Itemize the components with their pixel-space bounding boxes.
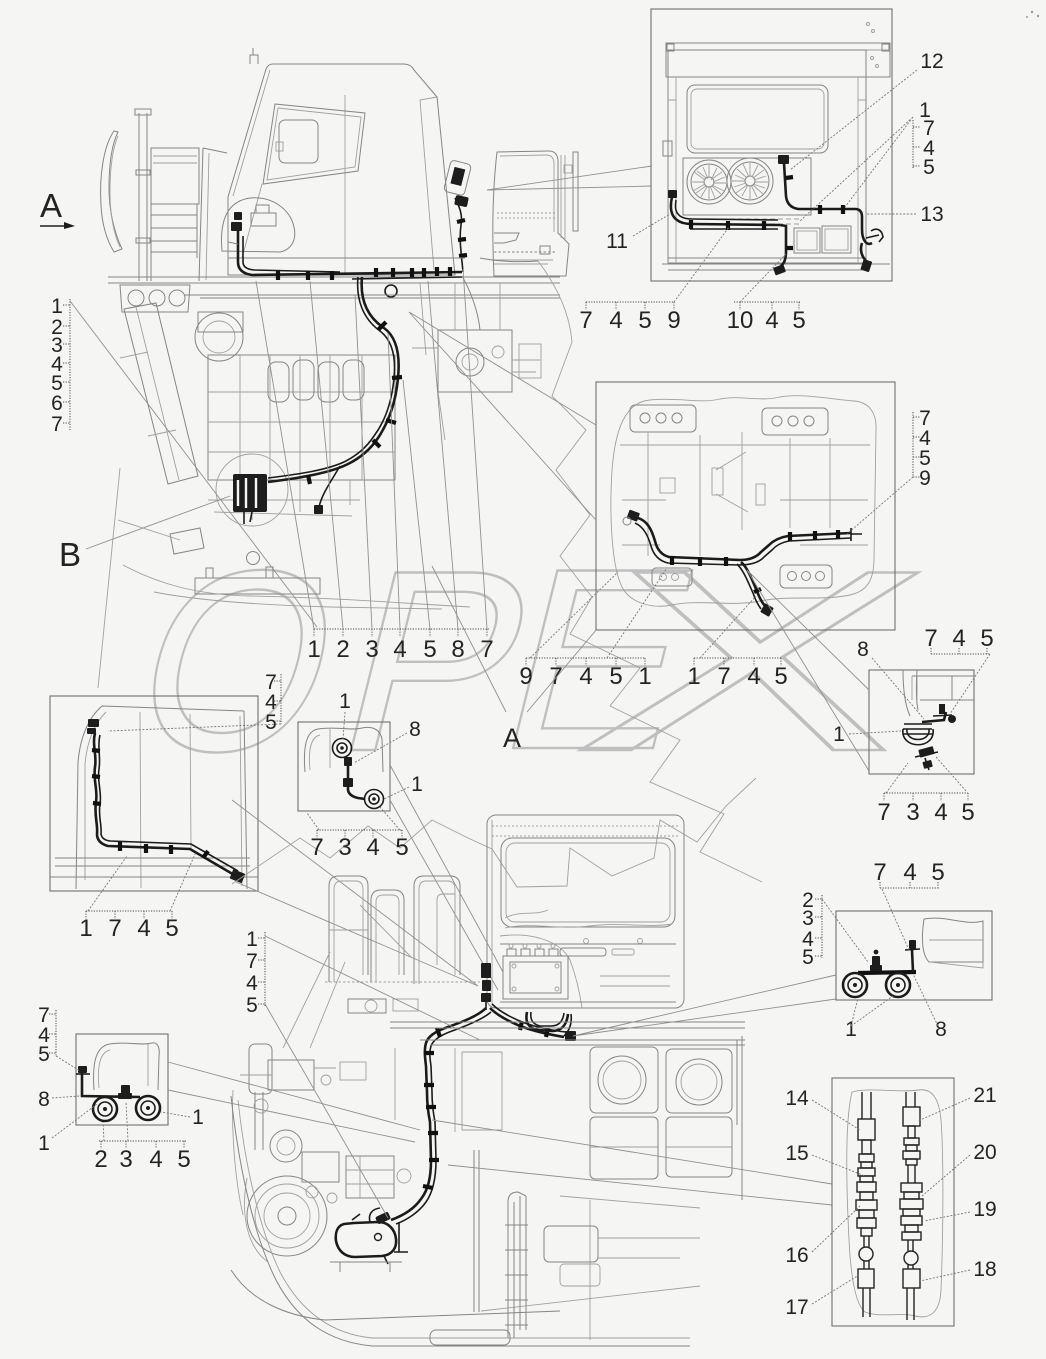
svg-text:7: 7 xyxy=(549,663,562,690)
svg-text:A: A xyxy=(503,723,521,753)
svg-text:4: 4 xyxy=(366,834,379,861)
svg-text:7: 7 xyxy=(310,834,323,861)
svg-text:1: 1 xyxy=(192,1106,204,1129)
svg-text:7: 7 xyxy=(51,413,63,436)
svg-text:1: 1 xyxy=(79,915,92,942)
svg-text:4: 4 xyxy=(149,1146,162,1173)
svg-text:9: 9 xyxy=(667,307,680,334)
svg-text:14: 14 xyxy=(785,1087,809,1110)
svg-text:21: 21 xyxy=(973,1084,996,1107)
svg-text:3: 3 xyxy=(802,907,814,930)
svg-text:1: 1 xyxy=(246,928,258,951)
svg-text:1: 1 xyxy=(833,723,845,746)
svg-text:A: A xyxy=(40,187,62,224)
svg-text:1: 1 xyxy=(307,636,320,663)
svg-text:15: 15 xyxy=(785,1142,808,1165)
svg-text:1: 1 xyxy=(339,690,351,713)
svg-text:11: 11 xyxy=(606,230,628,253)
svg-text:5: 5 xyxy=(265,711,277,734)
svg-text:8: 8 xyxy=(409,718,421,741)
svg-text:7: 7 xyxy=(873,859,886,886)
svg-text:5: 5 xyxy=(395,834,408,861)
svg-text:1: 1 xyxy=(638,663,651,690)
svg-text:8: 8 xyxy=(38,1088,50,1111)
svg-text:8: 8 xyxy=(451,636,464,663)
svg-text:3: 3 xyxy=(119,1146,132,1173)
svg-text:3: 3 xyxy=(365,636,378,663)
svg-text:9: 9 xyxy=(519,663,532,690)
svg-text:2: 2 xyxy=(336,636,349,663)
svg-text:7: 7 xyxy=(717,663,730,690)
svg-text:5: 5 xyxy=(802,946,814,969)
svg-text:1: 1 xyxy=(51,295,63,318)
svg-text:1: 1 xyxy=(845,1018,857,1041)
svg-text:18: 18 xyxy=(973,1258,996,1281)
svg-text:5: 5 xyxy=(609,663,622,690)
svg-text:4: 4 xyxy=(934,799,947,826)
svg-text:7: 7 xyxy=(924,625,937,652)
svg-text:4: 4 xyxy=(903,859,916,886)
svg-text:8: 8 xyxy=(935,1018,947,1041)
svg-text:7: 7 xyxy=(108,915,121,942)
svg-text:3: 3 xyxy=(906,799,919,826)
svg-text:1: 1 xyxy=(411,773,423,796)
svg-text:6: 6 xyxy=(51,392,63,415)
svg-text:4: 4 xyxy=(246,972,258,995)
svg-text:5: 5 xyxy=(246,994,258,1017)
svg-text:B: B xyxy=(59,536,81,573)
svg-text:4: 4 xyxy=(579,663,592,690)
svg-text:5: 5 xyxy=(923,156,935,179)
svg-text:4: 4 xyxy=(747,663,760,690)
svg-text:5: 5 xyxy=(165,915,178,942)
svg-text:1: 1 xyxy=(38,1132,50,1155)
svg-text:19: 19 xyxy=(973,1198,996,1221)
svg-text:4: 4 xyxy=(137,915,150,942)
svg-text:5: 5 xyxy=(177,1146,190,1173)
svg-text:7: 7 xyxy=(480,636,493,663)
svg-text:9: 9 xyxy=(919,467,931,490)
svg-text:20: 20 xyxy=(973,1141,996,1164)
svg-text:10: 10 xyxy=(727,307,754,334)
svg-text:7: 7 xyxy=(579,307,592,334)
svg-text:17: 17 xyxy=(785,1296,808,1319)
svg-text:4: 4 xyxy=(609,307,622,334)
svg-text:3: 3 xyxy=(338,834,351,861)
svg-text:5: 5 xyxy=(774,663,787,690)
svg-text:5: 5 xyxy=(961,799,974,826)
svg-text:5: 5 xyxy=(423,636,436,663)
svg-text:7: 7 xyxy=(877,799,890,826)
svg-text:13: 13 xyxy=(920,203,943,226)
svg-text:5: 5 xyxy=(792,307,805,334)
svg-text:4: 4 xyxy=(952,625,965,652)
svg-text:5: 5 xyxy=(38,1043,50,1066)
svg-text:12: 12 xyxy=(920,50,943,73)
svg-text:5: 5 xyxy=(931,859,944,886)
svg-text:4: 4 xyxy=(765,307,778,334)
svg-text:5: 5 xyxy=(638,307,651,334)
svg-text:4: 4 xyxy=(393,636,406,663)
svg-text:8: 8 xyxy=(857,638,869,661)
svg-text:7: 7 xyxy=(246,950,258,973)
svg-text:2: 2 xyxy=(94,1146,107,1173)
svg-text:5: 5 xyxy=(980,625,993,652)
svg-text:16: 16 xyxy=(785,1244,808,1267)
svg-text:1: 1 xyxy=(687,663,700,690)
